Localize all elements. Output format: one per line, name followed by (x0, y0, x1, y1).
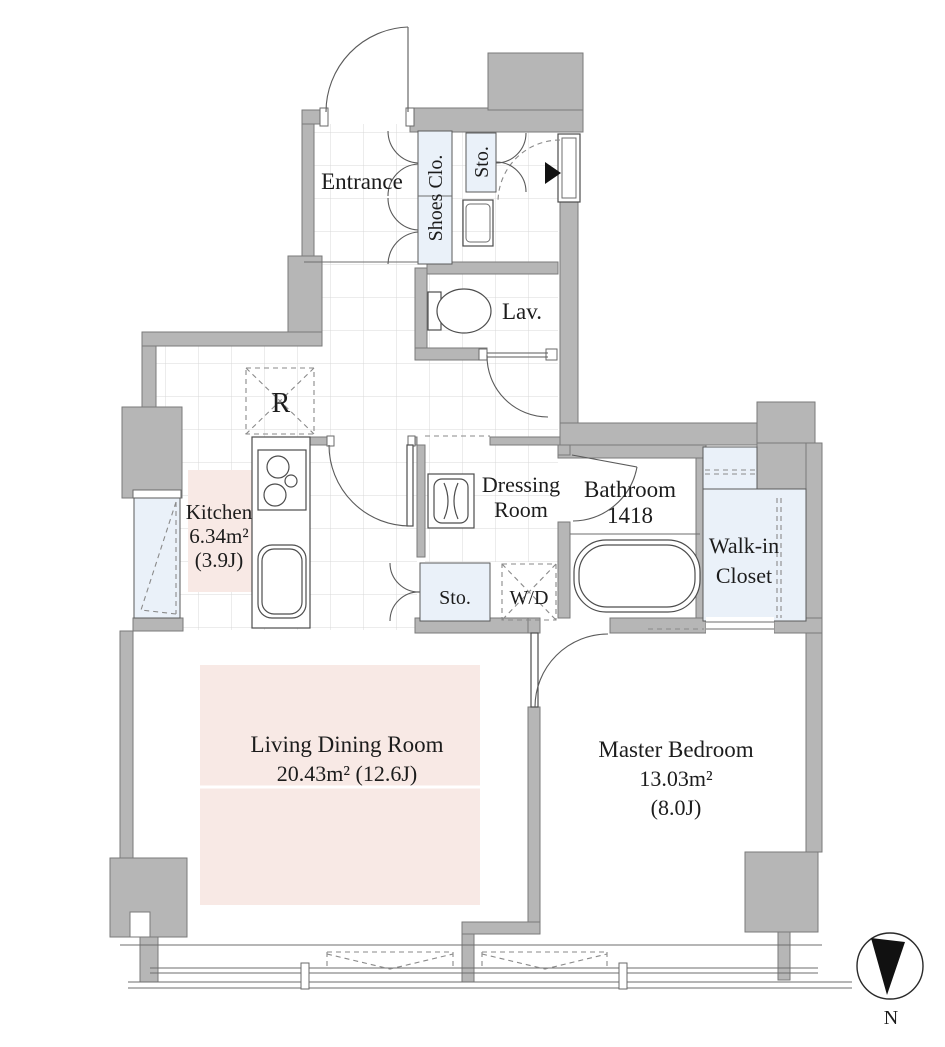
bathroom-size: 1418 (607, 503, 653, 528)
toilet (428, 289, 491, 333)
wic-label-1: Walk-in (709, 533, 779, 558)
entrance-storage-label: Sto. (471, 146, 493, 178)
washer-dryer-label: W/D (510, 587, 549, 609)
wic-label-2: Closet (716, 563, 772, 588)
window-mullion (619, 963, 627, 989)
wic-opening (706, 617, 774, 634)
sliding-window-right (482, 952, 607, 970)
master-bedroom-tatami: (8.0J) (651, 795, 702, 820)
pillar-notch (130, 912, 150, 937)
washbasin (428, 474, 474, 528)
bedroom-door (531, 633, 608, 707)
living-dining-area: 20.43m² (12.6J) (277, 761, 417, 786)
compass: N (857, 933, 923, 1029)
kitchen-window (134, 498, 180, 618)
bathroom-label: Bathroom (584, 477, 676, 502)
kitchen-counter (252, 437, 310, 628)
living-dining-label: Living Dining Room (251, 732, 444, 757)
master-bedroom-area: 13.03m² (639, 766, 713, 791)
dressing-room-label-2: Room (494, 497, 548, 522)
compass-label: N (884, 1007, 898, 1029)
floor-plan: Entrance Shoes Clo. Sto. Lav. R Kitchen … (0, 0, 945, 1047)
master-bedroom-label: Master Bedroom (598, 737, 753, 762)
hall-storage-label: Sto. (439, 587, 471, 609)
kitchen-area: 6.34m² (189, 524, 248, 548)
shoes-closet-label: Shoes Clo. (425, 155, 447, 242)
window-cap (133, 490, 181, 498)
balcony (120, 945, 852, 989)
north-entry-door (326, 27, 408, 112)
dressing-room-label-1: Dressing (482, 472, 560, 497)
entrance-label: Entrance (321, 169, 403, 194)
floor-plan-drawing: Entrance Shoes Clo. Sto. Lav. R Kitchen … (0, 0, 945, 1047)
window-mullion (301, 963, 309, 989)
sliding-window-left (327, 952, 453, 970)
kitchen-label: Kitchen (186, 500, 253, 524)
lavatory-label: Lav. (502, 299, 542, 324)
wic-upper-box (703, 447, 757, 489)
bathtub (570, 534, 700, 612)
kitchen-tatami: (3.9J) (195, 548, 243, 572)
refrigerator-label: R (272, 388, 291, 419)
